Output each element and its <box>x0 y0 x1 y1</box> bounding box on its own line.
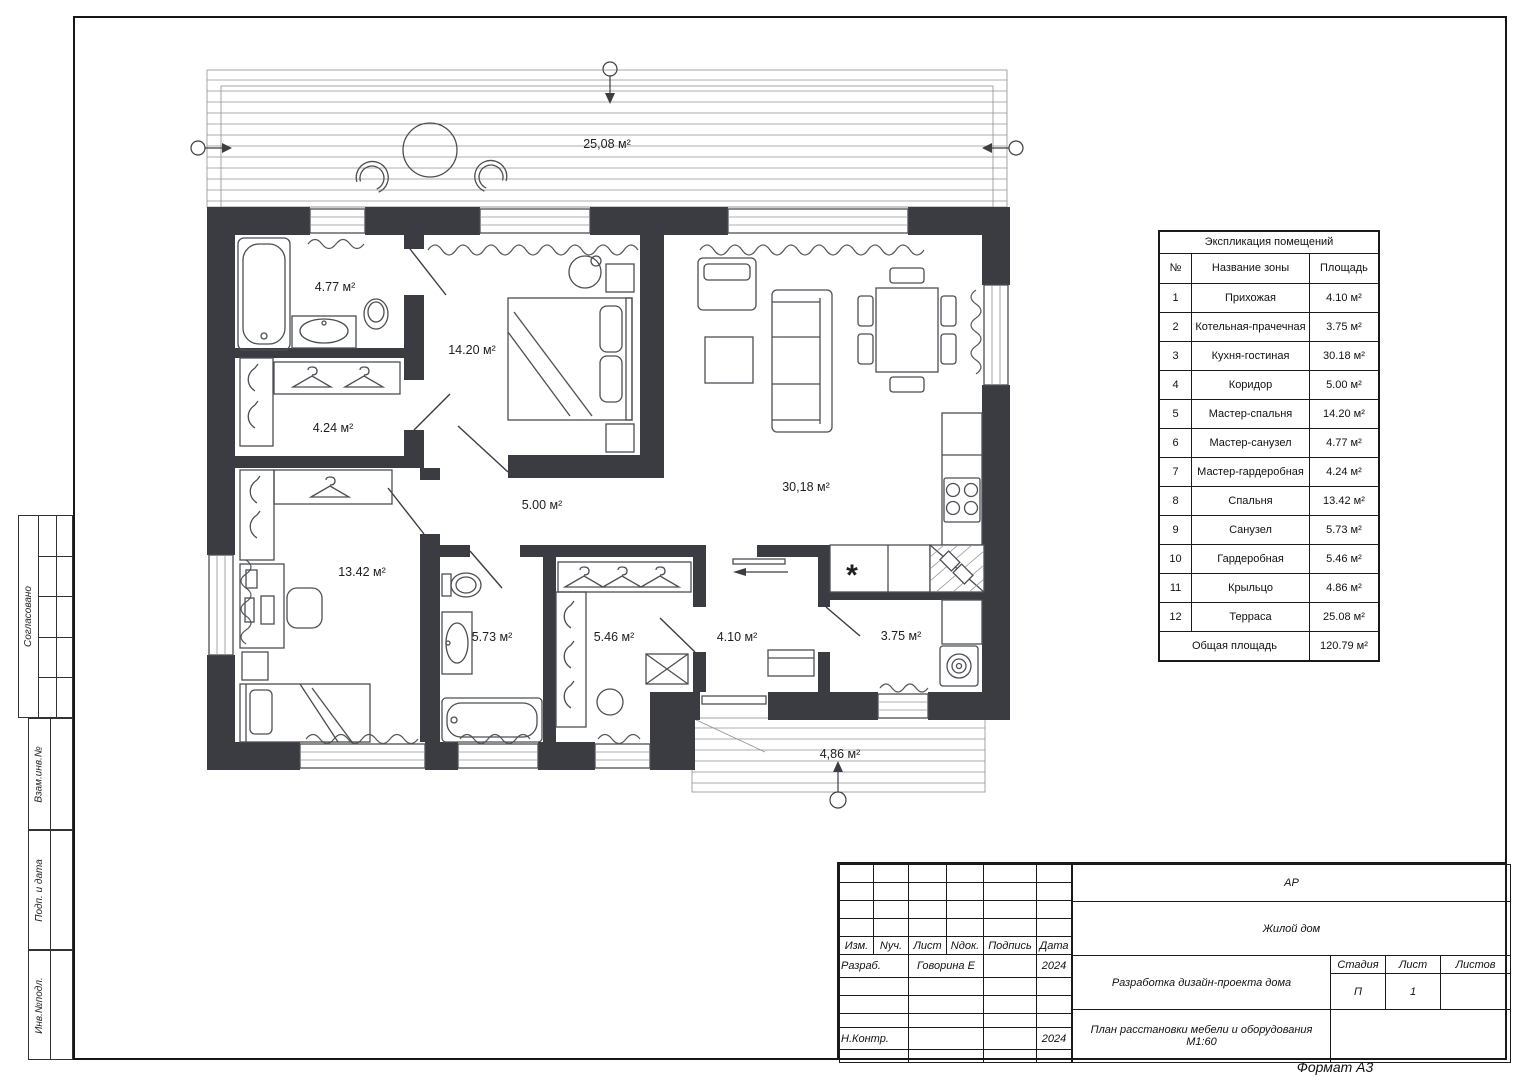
sig-row <box>840 996 1072 1014</box>
side-block-inv: Инв.№подл. <box>28 950 73 1060</box>
sig-row: Н.Контр.2024 <box>840 1028 1072 1050</box>
sig-row <box>840 978 1072 996</box>
table-row: 11Крыльцо4.86 м² <box>1159 573 1379 602</box>
table-row: 1Прихожая4.10 м² <box>1159 283 1379 312</box>
sig-row <box>840 1050 1072 1063</box>
boiler-furniture <box>940 600 982 686</box>
table-row: 4Коридор5.00 м² <box>1159 370 1379 399</box>
agreed-signature-grid <box>39 516 72 717</box>
document-code: АР <box>1073 865 1511 902</box>
sheet-label: Лист <box>1386 956 1441 974</box>
explication-col-num: № <box>1159 253 1192 283</box>
living-kitchen-furniture <box>698 258 984 592</box>
master-bath-area-label: 4.77 м² <box>315 280 356 294</box>
wardrobe-area-label: 5.46 м² <box>594 630 635 644</box>
drawing-title-cell: План расстановки мебели и оборудованияМ1… <box>1073 1010 1331 1063</box>
table-row: 6Мастер-санузел4.77 м² <box>1159 428 1379 457</box>
sheet-value: 1 <box>1386 974 1441 1010</box>
boiler-area-label: 3.75 м² <box>881 629 922 643</box>
table-row: 3Кухня-гостиная30.18 м² <box>1159 341 1379 370</box>
project-name: Разработка дизайн-проекта дома <box>1073 956 1331 1010</box>
master-bath-furniture <box>238 238 388 350</box>
title-block: Изм. Nуч. Лист Nдок. Подпись Дата Разраб… <box>837 862 1507 1060</box>
total-row: Общая площадь 120.79 м² <box>1159 631 1379 661</box>
sig-row <box>840 1014 1072 1028</box>
side-label-agreed: Согласовано <box>23 586 34 647</box>
table-row: 5Мастер-спальня14.20 м² <box>1159 399 1379 428</box>
format-label: Формат А3 <box>1245 1059 1425 1075</box>
revision-header-row: Изм. Nуч. Лист Nдок. Подпись Дата <box>840 937 1072 955</box>
title-block-revision-grid: Изм. Nуч. Лист Nдок. Подпись Дата Разраб… <box>839 864 1072 1063</box>
explication-table: Экспликация помещений № Название зоны Пл… <box>1158 230 1380 662</box>
master-wardrobe-area-label: 4.24 м² <box>313 421 354 435</box>
bathroom-furniture <box>442 573 542 742</box>
drawing-title: План расстановки мебели и оборудования <box>1091 1024 1313 1036</box>
sheets-label: Листов <box>1441 956 1511 974</box>
side-block-podp: Подп. и дата <box>28 830 73 950</box>
living-area-label: 30,18 м² <box>782 480 830 494</box>
stage-label: Стадия <box>1331 956 1386 974</box>
side-block-agreed: Согласовано <box>18 515 73 718</box>
explication-col-area: Площадь <box>1309 253 1379 283</box>
object-name: Жилой дом <box>1073 902 1511 956</box>
table-row: 7Мастер-гардеробная4.24 м² <box>1159 457 1379 486</box>
porch-area-label: 4,86 м² <box>820 747 861 761</box>
sheets-value <box>1441 974 1511 1010</box>
corridor-area-label: 5.00 м² <box>522 498 563 512</box>
explication-col-name: Название зоны <box>1192 253 1310 283</box>
table-row: 2Котельная-прачечная3.75 м² <box>1159 312 1379 341</box>
sig-row: Разраб.Говорина Е2024 <box>840 955 1072 978</box>
terrace-area-label: 25,08 м² <box>583 137 631 151</box>
side-label-inv: Инв.№подл. <box>34 977 45 1034</box>
master-bedroom-area-label: 14.20 м² <box>448 343 496 357</box>
drawing-scale: М1:60 <box>1186 1036 1217 1048</box>
kitchen-appliance-symbol: * <box>846 559 858 592</box>
bedroom-furniture <box>240 470 392 742</box>
side-block-vzam: Взам.инв.№ <box>28 718 73 830</box>
side-label-podp: Подп. и дата <box>34 859 45 922</box>
title-block-main: АР Жилой дом Разработка дизайн-проекта д… <box>1072 864 1511 1063</box>
hallway-furniture <box>733 559 814 676</box>
hallway-area-label: 4.10 м² <box>717 630 758 644</box>
explication-title: Экспликация помещений <box>1159 231 1379 253</box>
side-label-vzam: Взам.инв.№ <box>34 746 45 802</box>
table-row: 10Гардеробная5.46 м² <box>1159 544 1379 573</box>
bedroom-area-label: 13.42 м² <box>338 565 386 579</box>
table-row: 12Терраса25.08 м² <box>1159 602 1379 631</box>
table-row: 8Спальня13.42 м² <box>1159 486 1379 515</box>
terrace-chair <box>469 155 509 193</box>
stage-value: П <box>1331 974 1386 1010</box>
table-row: 9Санузел5.73 м² <box>1159 515 1379 544</box>
master-bedroom-furniture <box>508 256 634 452</box>
terrace-chair <box>353 156 393 194</box>
bathroom-area-label: 5.73 м² <box>472 630 513 644</box>
curtains <box>241 240 981 744</box>
